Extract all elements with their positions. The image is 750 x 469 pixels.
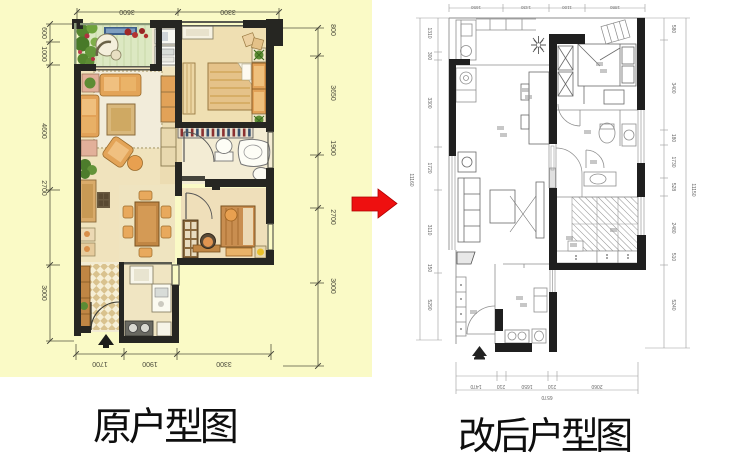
svg-text:3650: 3650 — [329, 85, 336, 101]
svg-text:800: 800 — [329, 24, 336, 36]
svg-text:3000: 3000 — [329, 278, 336, 294]
svg-text:3300: 3300 — [220, 8, 236, 15]
svg-text:3000: 3000 — [40, 285, 47, 301]
svg-text:1880: 1880 — [609, 5, 620, 10]
svg-text:1430: 1430 — [520, 5, 531, 10]
svg-text:4600: 4600 — [40, 123, 47, 139]
svg-text:3400: 3400 — [670, 82, 676, 93]
svg-text:6570: 6570 — [541, 394, 552, 400]
svg-text:180: 180 — [670, 134, 676, 143]
svg-text:1100: 1100 — [562, 5, 572, 10]
svg-text:3110: 3110 — [426, 225, 432, 236]
svg-text:580: 580 — [670, 25, 676, 34]
svg-text:1650: 1650 — [470, 5, 481, 10]
svg-text:210: 210 — [548, 383, 557, 389]
svg-text:11160: 11160 — [408, 173, 414, 186]
svg-text:3300: 3300 — [426, 97, 432, 108]
svg-text:528: 528 — [670, 183, 676, 192]
svg-text:1730: 1730 — [670, 156, 676, 167]
svg-text:150: 150 — [426, 264, 432, 273]
svg-text:5290: 5290 — [426, 299, 432, 310]
svg-text:300: 300 — [426, 52, 432, 61]
svg-text:2700: 2700 — [329, 209, 336, 225]
svg-text:3600: 3600 — [119, 8, 135, 15]
svg-text:1000: 1000 — [40, 46, 47, 62]
svg-text:510: 510 — [670, 253, 676, 262]
svg-text:11150: 11150 — [690, 183, 696, 196]
svg-text:3300: 3300 — [216, 360, 232, 367]
svg-text:2700: 2700 — [40, 180, 47, 196]
svg-text:1700: 1700 — [92, 360, 108, 367]
svg-text:5240: 5240 — [670, 299, 676, 310]
svg-text:1650: 1650 — [521, 383, 532, 389]
svg-text:1470: 1470 — [470, 383, 481, 389]
svg-text:1900: 1900 — [329, 140, 336, 156]
svg-text:2060: 2060 — [591, 383, 602, 389]
svg-text:210: 210 — [497, 383, 506, 389]
svg-text:1720: 1720 — [426, 162, 432, 173]
svg-text:2480: 2480 — [670, 222, 676, 233]
svg-text:1310: 1310 — [426, 27, 432, 38]
svg-text:600: 600 — [40, 27, 47, 39]
svg-text:1900: 1900 — [142, 360, 158, 367]
